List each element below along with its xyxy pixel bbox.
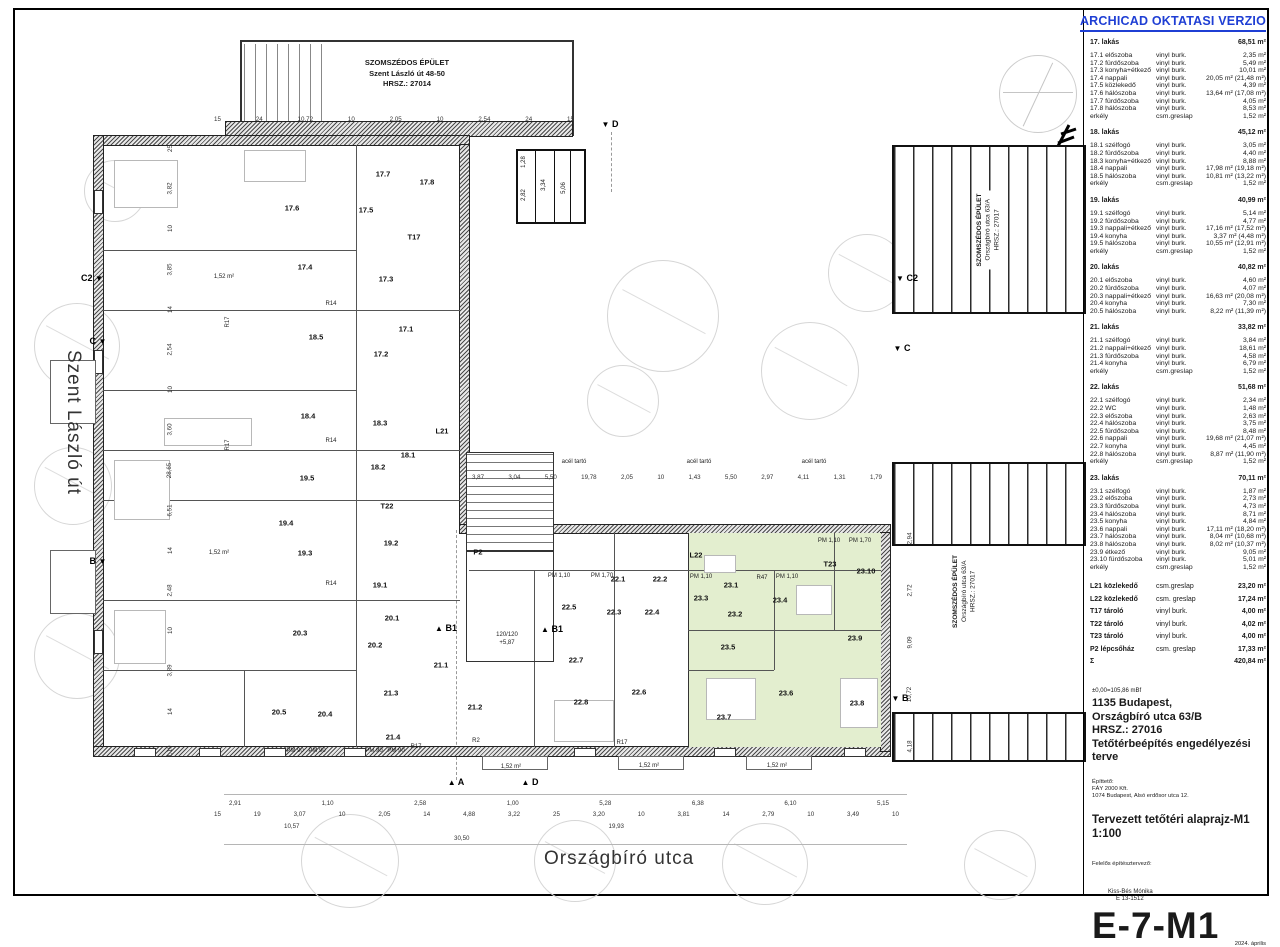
dimension-value: 5,50 — [545, 474, 557, 481]
partition — [103, 250, 356, 251]
detail-label: acél tartó — [562, 459, 587, 465]
apartment-header: 17. lakás68,51 m² — [1090, 39, 1266, 47]
dimension-value: 19 — [254, 811, 261, 818]
schedule-row: 17.5 közlekedővinyl burk.4,39 m² — [1090, 82, 1266, 90]
room-label: 18.2 — [371, 463, 386, 472]
room-label: T22 — [381, 502, 394, 511]
room-label: 22.5 — [562, 603, 577, 612]
detail-label: PM 90 — [365, 748, 382, 754]
dimension-value: 10 — [348, 116, 355, 123]
room-label: T17 — [408, 233, 421, 242]
dimension-value: 2,48 — [167, 585, 174, 597]
schedule-row: 22.7 konyhavinyl burk.4,45 m² — [1090, 443, 1266, 451]
dimension-value: 3,60 — [167, 424, 174, 436]
schedule-row: 18.5 hálószobavinyl burk.10,81 m² (13,22… — [1090, 173, 1266, 181]
room-label: 22.4 — [645, 608, 660, 617]
section-marker-c2: C2 ▼ — [81, 273, 103, 283]
dimension-value: 15 — [214, 811, 221, 818]
schedule-row: erkélycsm.greslap1,52 m² — [1090, 458, 1266, 466]
room-label: 21.2 — [468, 703, 483, 712]
room-label: 19.4 — [279, 519, 294, 528]
dimension-value: 30,50 — [454, 835, 469, 842]
dimension-value: 3,82 — [167, 183, 174, 195]
room-label: 22.3 — [607, 608, 622, 617]
schedule-row: 23.8 hálószobavinyl burk.8,02 m² (10,37 … — [1090, 541, 1266, 549]
dimension-value: 10,72 — [298, 116, 313, 123]
detail-label: PM 90 — [308, 748, 325, 754]
schedule-row: 18.2 fürdőszobavinyl burk.4,40 m² — [1090, 150, 1266, 158]
tree-icon — [607, 260, 719, 372]
party-wall-top — [226, 122, 572, 136]
schedule-row: 23.7 hálószobavinyl burk.8,04 m² (10,68 … — [1090, 533, 1266, 541]
schedule-row: 18.4 nappalivinyl burk.17,98 m² (19,18 m… — [1090, 165, 1266, 173]
schedule-row: 18.3 konyha+étkezővinyl burk.8,88 m² — [1090, 158, 1266, 166]
schedule-row: 17.3 konyha+étkezővinyl burk.10,01 m² — [1090, 67, 1266, 75]
detail-label: PM 1,10 — [690, 574, 712, 580]
schedule-row: erkélycsm.greslap1,52 m² — [1090, 564, 1266, 572]
schedule-row: 19.1 szélfogóvinyl burk.5,14 m² — [1090, 210, 1266, 218]
room-label: 17.4 — [298, 263, 313, 272]
schedule-row: erkélycsm.greslap1,52 m² — [1090, 113, 1266, 121]
schedule-extra-row: Σ420,84 m² — [1090, 656, 1266, 669]
dimension-value: 3,04 — [508, 474, 520, 481]
dimension-value: 9,09 — [907, 636, 914, 648]
dimension-value: 10 — [657, 474, 664, 481]
window — [574, 748, 596, 757]
detail-label: PM 90 — [286, 748, 303, 754]
dim-row-bottom-3: 10,5719,93 — [284, 823, 624, 830]
detail-label: R2 — [472, 738, 480, 744]
dimension-value: 24 — [525, 116, 532, 123]
room-label: 22.2 — [653, 575, 668, 584]
room-label: 19.2 — [384, 539, 399, 548]
dimension-value: 2,79 — [762, 811, 774, 818]
schedule-row: 19.2 fürdőszobavinyl burk.4,77 m² — [1090, 218, 1266, 226]
room-label: 23.10 — [857, 567, 876, 576]
dimension-value: 10,57 — [284, 823, 299, 830]
schedule-row: 17.1 előszobavinyl burk.2,35 m² — [1090, 52, 1266, 60]
dimension-value: 10 — [166, 627, 173, 634]
designer-label: Felelős építésztervező: — [1092, 861, 1266, 867]
detail-label: R14 — [325, 301, 336, 307]
dimension-value: 2,54 — [478, 116, 490, 123]
section-marker-b: ▼ B — [892, 693, 909, 703]
address-line: Országbíró utca 63/B — [1092, 711, 1266, 725]
dimension-value: 3,49 — [847, 811, 859, 818]
dimension-value: 6,38 — [692, 800, 704, 807]
schedule-row: 20.2 fürdőszobavinyl burk.4,07 m² — [1090, 285, 1266, 293]
dimension-value: 4,18 — [907, 740, 914, 752]
partition — [774, 570, 775, 670]
window — [844, 748, 866, 757]
tree-icon — [761, 322, 859, 420]
dimension-value: 14 — [166, 547, 173, 554]
room-label: 18.1 — [401, 451, 416, 460]
dim-row-bottom-1: 2,911,102,581,005,286,386,105,15 — [229, 800, 889, 807]
room-label: 23.3 — [694, 594, 709, 603]
dimension-value: 1,19 — [167, 745, 174, 757]
room-label: 22.6 — [632, 688, 647, 697]
dimension-value: 24 — [256, 116, 263, 123]
client-address: 1074 Budapest, Alsó erdősor utca 12. — [1092, 793, 1266, 800]
partition — [688, 670, 774, 671]
detail-label: PM 90 — [387, 748, 404, 754]
room-label: 21.3 — [384, 689, 399, 698]
detail-label: R14 — [325, 438, 336, 444]
detail-label: 120/120 — [496, 632, 518, 638]
room-label: 17.5 — [359, 206, 374, 215]
detail-label: 1,52 m² — [209, 550, 229, 556]
dimension-value: 14 — [723, 811, 730, 818]
dim-row-top: 152410,72102,05102,542415 — [214, 116, 574, 123]
schedule-row: 22.8 hálószobavinyl burk.8,87 m² (11,90 … — [1090, 451, 1266, 459]
detail-label: 3,34 — [541, 179, 547, 191]
detail-label: acél tartó — [802, 459, 827, 465]
room-label: 20.4 — [318, 710, 333, 719]
apartment-header: 22. lakás51,68 m² — [1090, 384, 1266, 392]
dimension-value: 25 — [166, 145, 173, 152]
schedule-row: 22.6 nappalivinyl burk.19,68 m² (21,07 m… — [1090, 435, 1266, 443]
partition — [103, 390, 356, 391]
room-label: 17.6 — [285, 204, 300, 213]
schedule-row: erkélycsm.greslap1,52 m² — [1090, 180, 1266, 188]
dimension-value: 3,85 — [167, 263, 174, 275]
detail-label: PM 1,70 — [591, 573, 613, 579]
room-label: 23.7 — [717, 713, 732, 722]
apartment-header: 18. lakás45,12 m² — [1090, 129, 1266, 137]
schedule-row: 21.4 konyhavinyl burk.6,79 m² — [1090, 360, 1266, 368]
client-name: FÁY 2000 Kft. — [1092, 786, 1266, 793]
dimension-value: 4,88 — [463, 811, 475, 818]
schedule-row: 21.3 fürdőszobavinyl burk.4,58 m² — [1090, 353, 1266, 361]
apartment-header: 21. lakás33,82 m² — [1090, 324, 1266, 332]
dim-col-left: 253,82103,85142,54103,6028,656,51142,481… — [164, 145, 176, 755]
window — [94, 630, 103, 654]
titleblock-divider — [1083, 10, 1084, 894]
dimension-value: 1,10 — [322, 800, 334, 807]
room-label: 20.5 — [272, 708, 287, 717]
dimension-value: 5,50 — [725, 474, 737, 481]
schedule-row: 21.1 szélfogóvinyl burk.3,84 m² — [1090, 337, 1266, 345]
room-label: 19.1 — [373, 581, 388, 590]
section-line-a — [456, 530, 457, 780]
dimension-value: 2,97 — [761, 474, 773, 481]
dim-row-bottom-2: 15193,07102,05144,883,22253,20103,81142,… — [214, 811, 899, 818]
partition — [244, 670, 245, 747]
dimension-value: 19,93 — [609, 823, 624, 830]
schedule-row: 19.3 nappali+étkezővinyl burk.17,16 m² (… — [1090, 225, 1266, 233]
room-label: 18.3 — [373, 419, 388, 428]
window — [134, 748, 156, 757]
schedule-row: erkélycsm.greslap1,52 m² — [1090, 368, 1266, 376]
dimension-value: 6,10 — [784, 800, 796, 807]
schedule-row: 17.6 hálószobavinyl burk.13,64 m² (17,08… — [1090, 90, 1266, 98]
dimension-value: 3,22 — [508, 811, 520, 818]
detail-label: PM 1,10 — [818, 538, 840, 544]
dimension-value: 1,43 — [689, 474, 701, 481]
apartment-header: 20. lakás40,82 m² — [1090, 264, 1266, 272]
room-label: 20.3 — [293, 629, 308, 638]
wall — [94, 136, 469, 145]
dimension-value: 6,51 — [167, 504, 174, 516]
partition — [356, 145, 357, 747]
tree-icon — [34, 613, 120, 699]
section-marker-b1: ▲ B1 — [541, 624, 563, 634]
partition — [103, 670, 356, 671]
detail-label: 1,52 m² — [767, 763, 787, 769]
detail-label: R17 — [225, 316, 231, 327]
section-marker-d: ▲ D — [522, 777, 539, 787]
wall — [881, 533, 890, 751]
tree-icon — [587, 365, 659, 437]
schedule-row: 23.9 étkezővinyl burk.9,05 m² — [1090, 549, 1266, 557]
room-label: L22 — [690, 551, 703, 560]
section-marker-a: ▲ A — [448, 777, 465, 787]
dimension-value: 3,87 — [472, 474, 484, 481]
room-label: P2 — [473, 548, 482, 557]
neighbor-building-right-lower — [892, 712, 1086, 762]
room-label: 17.2 — [374, 350, 389, 359]
section-marker-b1: ▲ B1 — [435, 623, 457, 633]
section-marker-c: ▼ C — [894, 343, 911, 353]
detail-label: 1,52 m² — [214, 274, 234, 280]
furniture — [796, 585, 832, 615]
window — [714, 748, 736, 757]
schedule-row: 17.8 hálószobavinyl burk.8,53 m² — [1090, 105, 1266, 113]
schedule-row: 23.4 hálószobavinyl burk.8,71 m² — [1090, 511, 1266, 519]
room-label: 21.1 — [434, 661, 449, 670]
window — [94, 190, 103, 214]
schedule-row: 17.2 fürdőszobavinyl burk.5,49 m² — [1090, 60, 1266, 68]
section-marker-b: B ▼ — [90, 556, 107, 566]
neighbor-building-right-upper: SZOMSZÉDOS ÉPÜLET Országbíró utca 63/A H… — [892, 145, 1086, 314]
room-label: 17.1 — [399, 325, 414, 334]
street-name-left: Szent László út — [62, 350, 84, 495]
dimension-value: 5,15 — [877, 800, 889, 807]
dimension-value: 10 — [166, 386, 173, 393]
dimension-value: 28,65 — [167, 462, 174, 477]
window — [344, 748, 366, 757]
drawing-scale: 1:100 — [1092, 827, 1266, 841]
furniture — [704, 555, 736, 573]
schedule-row: 23.5 konyhavinyl burk.4,84 m² — [1090, 518, 1266, 526]
room-label: 19.5 — [300, 474, 315, 483]
designer-registration: É 13-1512 — [1116, 896, 1266, 903]
dimension-value: 3,89 — [167, 665, 174, 677]
neighbor-building-right-mid — [892, 462, 1086, 546]
title-column: ARCHICAD OKTATASI VERZIO 17. lakás68,51 … — [1086, 10, 1268, 894]
detail-label: PM 1,10 — [548, 573, 570, 579]
schedule-extra-row: T22 tárolóvinyl burk.4,02 m² — [1090, 619, 1266, 632]
elevation-note: ±0,00=105,86 mBf — [1092, 688, 1266, 694]
dimension-value: 10 — [437, 116, 444, 123]
neighbor-right-upper-label: SZOMSZÉDOS ÉPÜLET Országbíró utca 63/A H… — [975, 190, 1003, 269]
schedule-row: 17.7 fürdőszobavinyl burk.4,05 m² — [1090, 98, 1266, 106]
schedule-row: 22.1 szélfogóvinyl burk.2,34 m² — [1090, 397, 1266, 405]
apartment-header: 23. lakás70,11 m² — [1090, 475, 1266, 483]
room-label: 23.1 — [724, 581, 739, 590]
neighbor-right-lower-label: SZOMSZÉDOS ÉPÜLET Országbíró utca 63/A H… — [952, 555, 978, 628]
street-name-bottom: Országbíró utca — [544, 848, 694, 870]
schedule-row: 20.5 hálószobavinyl burk.8,22 m² (11,39 … — [1090, 308, 1266, 316]
address-line: 1135 Budapest, — [1092, 697, 1266, 711]
schedule-extra-row: L22 közlekedőcsm. greslap17,24 m² — [1090, 594, 1266, 607]
detail-label: +5,87 — [499, 640, 514, 646]
dimension-value: 19,78 — [581, 474, 596, 481]
window — [264, 748, 286, 757]
designer-info: Kiss-Bés Mónika É 13-1512 — [1108, 889, 1266, 903]
dimension-value: 15 — [214, 116, 221, 123]
client-label: Építtető: — [1092, 779, 1266, 786]
room-label: T23 — [824, 560, 837, 569]
room-label: 20.1 — [385, 614, 400, 623]
dimension-value: 2,54 — [167, 343, 174, 355]
section-line-d — [611, 132, 612, 192]
schedule-row: 20.1 előszobavinyl burk.4,60 m² — [1090, 277, 1266, 285]
schedule-row: 23.2 előszobavinyl burk.2,73 m² — [1090, 495, 1266, 503]
dimension-value: 2,05 — [390, 116, 402, 123]
schedule-row: 23.10 fürdőszobavinyl burk.5,01 m² — [1090, 556, 1266, 564]
detail-label: 1,52 m² — [639, 763, 659, 769]
schedule-row: 22.3 előszobavinyl burk.2,63 m² — [1090, 413, 1266, 421]
room-label: 22.7 — [569, 656, 584, 665]
dimension-value: 2,05 — [621, 474, 633, 481]
room-label: 23.8 — [850, 699, 865, 708]
dimension-value: 5,28 — [599, 800, 611, 807]
dim-col-right: 2,942,729,0910,724,18 — [904, 535, 916, 750]
dimension-value: 10 — [892, 811, 899, 818]
room-label: 20.2 — [368, 641, 383, 650]
page: { "banner": "ARCHICAD OKTATASI VERZIO", … — [0, 0, 1280, 904]
dimension-value: 1,00 — [507, 800, 519, 807]
dimension-value: 2,91 — [229, 800, 241, 807]
floor-plan: SZOMSZÉDOS ÉPÜLET Szent László út 48-50 … — [14, 10, 1082, 894]
detail-label: 1,28 — [521, 156, 527, 168]
partition — [103, 600, 460, 601]
schedule-row: 22.5 fürdőszobavinyl burk.8,48 m² — [1090, 428, 1266, 436]
detail-label: R47 — [756, 575, 767, 581]
room-label: 22.8 — [574, 698, 589, 707]
schedule-extra-row: L21 közlekedőcsm.greslap23,20 m² — [1090, 581, 1266, 594]
dimension-value: 4,11 — [798, 474, 810, 481]
designer-name: Kiss-Bés Mónika — [1108, 889, 1266, 896]
schedule-extra-row: T17 tárolóvinyl burk.4,00 m² — [1090, 606, 1266, 619]
schedule-row: 19.4 konyhavinyl burk.3,37 m² (4,48 m²) — [1090, 233, 1266, 241]
dimension-value: 3,81 — [678, 811, 690, 818]
drawing-title-text: Tervezett tetőtéri alaprajz-M1 — [1092, 813, 1266, 827]
partition — [688, 533, 689, 747]
dimension-value: 14 — [166, 306, 173, 313]
room-label: 23.5 — [721, 643, 736, 652]
room-label: 18.4 — [301, 412, 316, 421]
room-schedule: 17. lakás68,51 m²17.1 előszobavinyl burk… — [1090, 30, 1266, 669]
room-label: 17.8 — [420, 178, 435, 187]
section-marker-c2: ▼ C2 — [896, 273, 918, 283]
dimension-value: 3,07 — [294, 811, 306, 818]
apartment-header: 19. lakás40,99 m² — [1090, 197, 1266, 205]
dimension-value: 1,31 — [834, 474, 846, 481]
dimension-value: 14 — [166, 708, 173, 715]
partition — [834, 533, 835, 630]
project-name: Tetőtérbeépítés engedélyezési terve — [1092, 738, 1266, 765]
schedule-row: 23.1 szélfogóvinyl burk.1,87 m² — [1090, 488, 1266, 496]
furniture — [244, 150, 306, 182]
dim-line — [224, 844, 907, 845]
dim-row-courtyard: 3,873,045,5019,782,05101,435,502,974,111… — [472, 474, 882, 481]
detail-label: 1,52 m² — [501, 764, 521, 770]
dimension-value: 2,05 — [378, 811, 390, 818]
dimension-value: 25 — [553, 811, 560, 818]
dimension-value: 2,94 — [907, 532, 914, 544]
schedule-row: 20.3 nappali+étkezővinyl burk.16,63 m² (… — [1090, 293, 1266, 301]
detail-label: R17 — [616, 740, 627, 746]
dimension-value: 10 — [638, 811, 645, 818]
schedule-extra-row: P2 lépcsőházcsm. greslap17,33 m² — [1090, 644, 1266, 657]
title-block: ±0,00=105,86 mBf 1135 Budapest, Országbí… — [1092, 688, 1266, 947]
dimension-value: 15 — [567, 116, 574, 123]
furniture — [114, 460, 170, 520]
detail-label: acél tartó — [687, 459, 712, 465]
detail-label: R17 — [225, 439, 231, 450]
room-label: 23.2 — [728, 610, 743, 619]
dimension-value: 3,20 — [593, 811, 605, 818]
section-marker-c: C ▼ — [90, 336, 107, 346]
partition — [614, 533, 615, 747]
tree-icon — [964, 830, 1036, 900]
section-marker-d: ▼ D — [602, 119, 619, 129]
room-label: 23.6 — [779, 689, 794, 698]
detail-label: R14 — [325, 581, 336, 587]
schedule-row: erkélycsm.greslap1,52 m² — [1090, 248, 1266, 256]
dimension-value: 1,79 — [870, 474, 882, 481]
staircase — [466, 452, 554, 552]
dim-row-bottom-4: 30,50 — [454, 835, 544, 842]
drawing-title: Tervezett tetőtéri alaprajz-M1 1:100 — [1092, 813, 1266, 841]
room-label: 17.7 — [376, 170, 391, 179]
room-label: 17.3 — [379, 275, 394, 284]
schedule-row: 22.2 WCvinyl burk.1,48 m² — [1090, 405, 1266, 413]
dim-line — [224, 794, 907, 795]
furniture — [164, 418, 252, 446]
room-label: 23.9 — [848, 634, 863, 643]
schedule-row: 20.4 konyhavinyl burk.7,30 m² — [1090, 300, 1266, 308]
partition — [103, 310, 460, 311]
dimension-value: 10 — [339, 811, 346, 818]
detail-label: PM 1,70 — [849, 538, 871, 544]
furniture — [114, 610, 166, 664]
dimension-value: 14 — [423, 811, 430, 818]
schedule-extra-row: T23 tárolóvinyl burk.4,00 m² — [1090, 631, 1266, 644]
address-line: HRSZ.: 27016 — [1092, 724, 1266, 738]
dimension-value: 10 — [807, 811, 814, 818]
room-label: 21.4 — [386, 733, 401, 742]
schedule-row: 23.3 fürdőszobavinyl burk.4,73 m² — [1090, 503, 1266, 511]
schedule-row: 21.2 nappali+étkezővinyl burk.18,61 m² — [1090, 345, 1266, 353]
window — [199, 748, 221, 757]
tree-icon — [722, 823, 808, 905]
wall — [94, 136, 103, 756]
schedule-row: 19.5 hálószobavinyl burk.10,55 m² (12,91… — [1090, 240, 1266, 248]
dimension-value: 10 — [166, 225, 173, 232]
dimension-value: 2,72 — [907, 584, 914, 596]
detail-label: R17 — [410, 744, 421, 750]
schedule-row: 23.6 nappalivinyl burk.17,11 m² (18,20 m… — [1090, 526, 1266, 534]
room-label: 23.4 — [773, 596, 788, 605]
schedule-row: 22.4 hálószobavinyl burk.3,75 m² — [1090, 420, 1266, 428]
detail-label: 2,82 — [521, 189, 527, 201]
room-label: L21 — [436, 427, 449, 436]
detail-label: 5,06 — [561, 182, 567, 194]
